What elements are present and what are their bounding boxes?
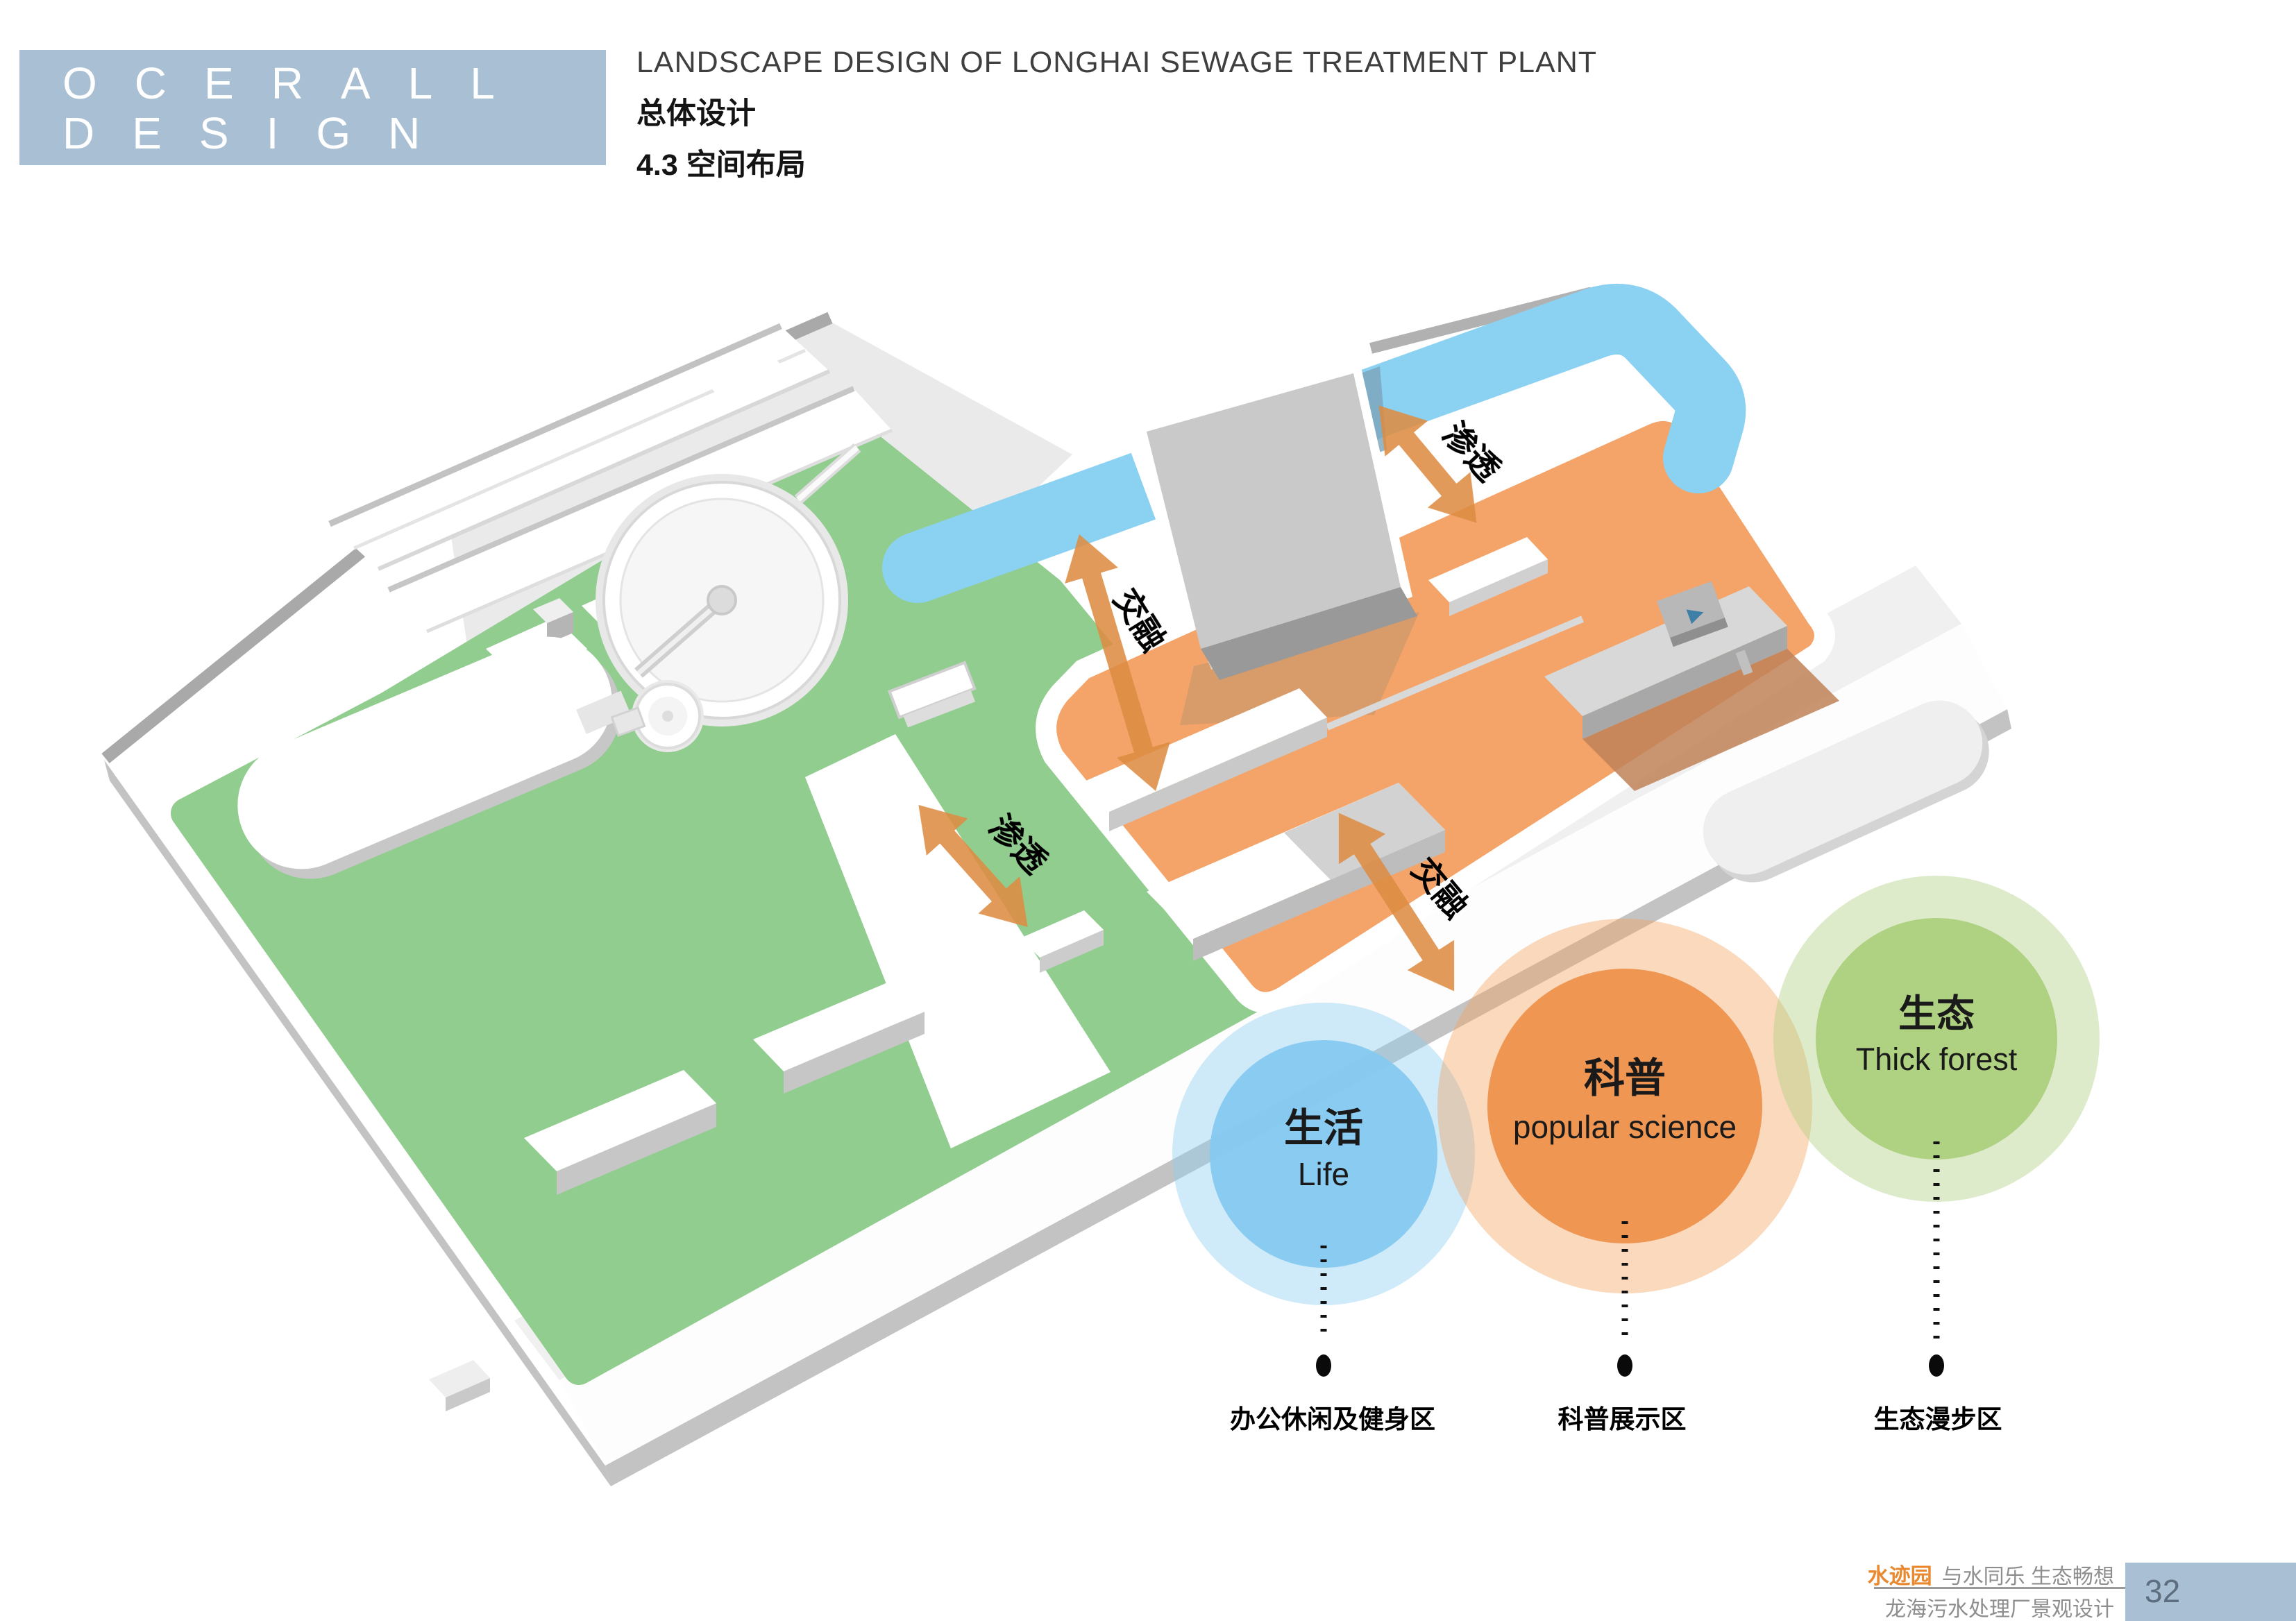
page-number-box: 32 xyxy=(2125,1563,2296,1621)
footer-brand-row: 水迹园与水同乐 生态畅想 xyxy=(1868,1558,2114,1590)
site-plan-illustration: 渗透 交融 交融 渗透 生活 Life 科普 popular science 生… xyxy=(0,0,2296,1623)
venn-area-labels: 办公休闲及健身区 科普展示区 生态漫步区 xyxy=(1230,1405,2002,1434)
venn-label-cn: 生态 xyxy=(1898,992,1975,1035)
page-number: 32 xyxy=(2145,1563,2296,1620)
footer-project-name: 龙海污水处理厂景观设计 xyxy=(1885,1592,2114,1622)
footer-brand: 水迹园 xyxy=(1868,1564,1932,1588)
venn-label-cn: 科普 xyxy=(1584,1055,1666,1101)
venn-leader-dots xyxy=(1316,1354,1944,1377)
footer-slogan: 与水同乐 生态畅想 xyxy=(1942,1565,2114,1588)
venn-label-en: popular science xyxy=(1513,1109,1737,1145)
area-label: 科普展示区 xyxy=(1558,1405,1687,1434)
area-label: 生态漫步区 xyxy=(1874,1405,2002,1434)
venn-label-en: Thick forest xyxy=(1856,1042,2018,1077)
area-label: 办公休闲及健身区 xyxy=(1230,1405,1435,1434)
venn-zone-eco xyxy=(1773,876,2100,1202)
venn-label-cn: 生活 xyxy=(1284,1106,1363,1150)
venn-label-en: Life xyxy=(1298,1156,1349,1192)
